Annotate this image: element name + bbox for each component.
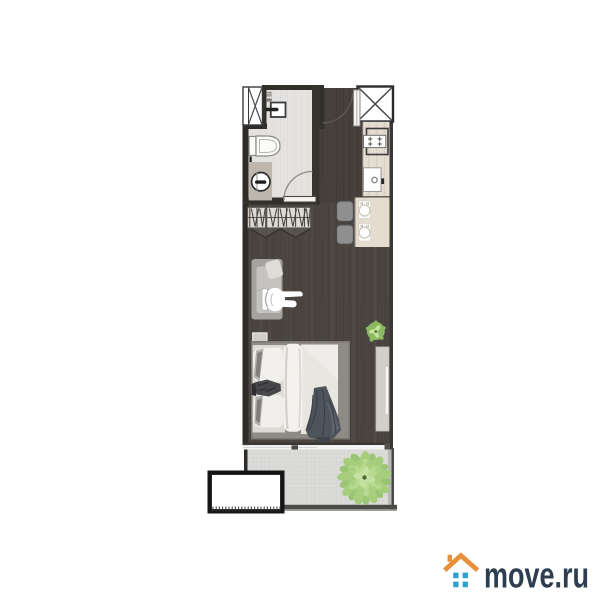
svg-text:move.ru: move.ru [484,555,589,596]
